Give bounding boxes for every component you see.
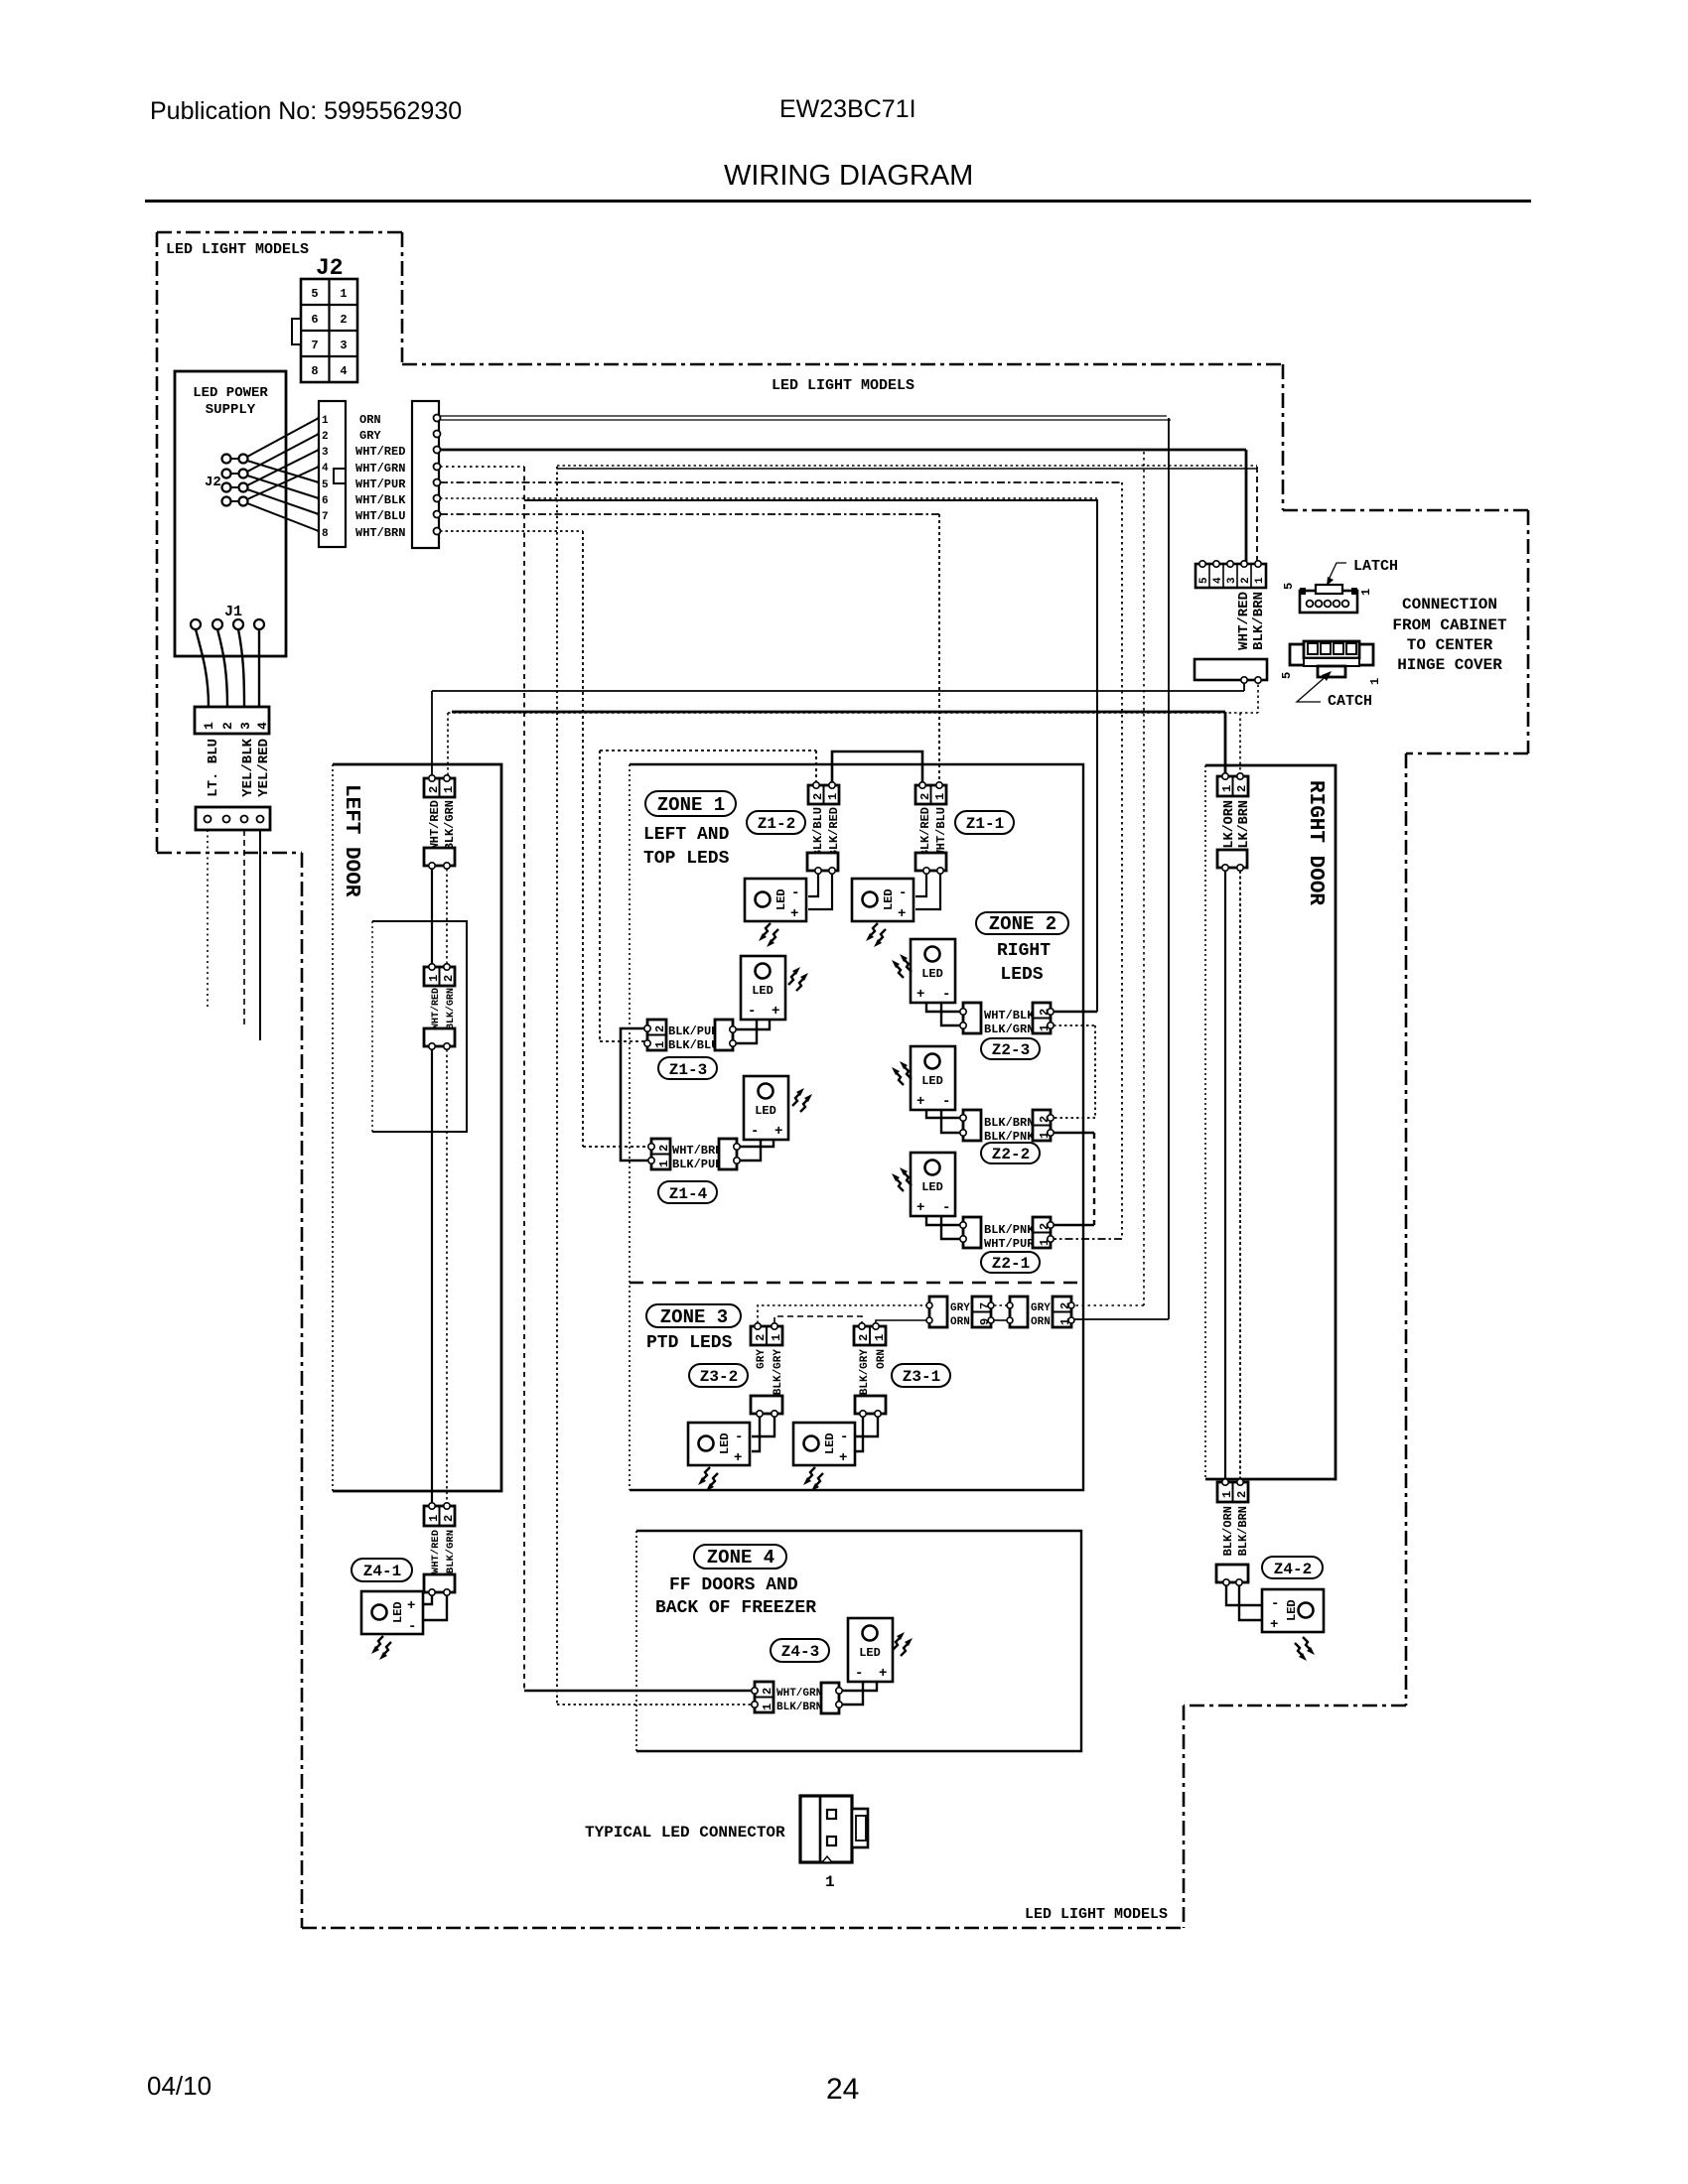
svg-text:2: 2 bbox=[220, 722, 235, 730]
svg-text:2: 2 bbox=[427, 786, 441, 793]
svg-text:5: 5 bbox=[1280, 672, 1294, 679]
svg-text:GRY: GRY bbox=[1031, 1302, 1051, 1314]
svg-text:WHT/RED: WHT/RED bbox=[355, 445, 405, 459]
svg-text:WHT/RED: WHT/RED bbox=[428, 800, 442, 850]
svg-text:1: 1 bbox=[1368, 678, 1382, 685]
svg-text:YEL/RED: YEL/RED bbox=[256, 739, 272, 797]
svg-text:5: 5 bbox=[311, 287, 318, 301]
svg-text:WHT/RED: WHT/RED bbox=[430, 988, 442, 1029]
svg-text:BLK/BLU: BLK/BLU bbox=[811, 807, 825, 857]
svg-text:BLK/PUR: BLK/PUR bbox=[672, 1158, 723, 1171]
svg-text:1: 1 bbox=[657, 1160, 671, 1167]
svg-text:1: 1 bbox=[653, 1041, 667, 1048]
svg-text:1: 1 bbox=[1220, 1491, 1234, 1498]
svg-text:WHT/PUR: WHT/PUR bbox=[355, 478, 406, 491]
svg-text:LEFT AND: LEFT AND bbox=[643, 825, 730, 845]
svg-text:LEFT DOOR: LEFT DOOR bbox=[340, 784, 362, 897]
svg-text:BLK/RED: BLK/RED bbox=[918, 807, 932, 857]
svg-text:2: 2 bbox=[322, 431, 329, 443]
svg-text:WHT/PUR: WHT/PUR bbox=[984, 1237, 1035, 1251]
svg-text:J1: J1 bbox=[224, 604, 242, 620]
svg-text:J2: J2 bbox=[205, 475, 221, 490]
svg-text:5: 5 bbox=[1282, 583, 1296, 590]
svg-text:2: 2 bbox=[1235, 1491, 1249, 1498]
svg-text:FF DOORS AND: FF DOORS AND bbox=[669, 1575, 798, 1595]
svg-text:4: 4 bbox=[255, 722, 270, 730]
svg-text:WHT/BLK: WHT/BLK bbox=[355, 493, 406, 507]
svg-text:1: 1 bbox=[442, 786, 456, 793]
svg-text:Z2-2: Z2-2 bbox=[992, 1146, 1030, 1163]
svg-text:BLK/BRN: BLK/BRN bbox=[1236, 1506, 1250, 1556]
svg-text:ORN: ORN bbox=[950, 1316, 970, 1328]
svg-text:SUPPLY: SUPPLY bbox=[206, 402, 256, 418]
svg-text:BLK/ORN: BLK/ORN bbox=[1221, 1506, 1235, 1556]
svg-text:GRY: GRY bbox=[950, 1302, 970, 1314]
svg-text:ZONE 4: ZONE 4 bbox=[707, 1547, 774, 1569]
svg-text:3: 3 bbox=[238, 722, 253, 730]
svg-text:BLK/RED: BLK/RED bbox=[827, 807, 841, 857]
svg-text:1: 1 bbox=[427, 975, 441, 982]
svg-text:WHT/RED: WHT/RED bbox=[1236, 592, 1252, 650]
svg-text:BLK/BRN: BLK/BRN bbox=[1237, 800, 1252, 857]
svg-text:2: 2 bbox=[442, 1515, 456, 1522]
svg-text:BLK/PNK: BLK/PNK bbox=[984, 1223, 1035, 1237]
svg-text:2: 2 bbox=[857, 1334, 871, 1341]
svg-text:4: 4 bbox=[322, 463, 329, 475]
svg-text:7: 7 bbox=[311, 339, 318, 352]
svg-text:Z1-4: Z1-4 bbox=[669, 1185, 708, 1203]
svg-text:4: 4 bbox=[1212, 577, 1224, 584]
svg-text:TOP LEDS: TOP LEDS bbox=[643, 849, 730, 869]
svg-text:YEL/BLK: YEL/BLK bbox=[240, 738, 256, 796]
svg-text:FROM CABINET: FROM CABINET bbox=[1392, 616, 1507, 634]
svg-text:1: 1 bbox=[1359, 589, 1373, 596]
svg-text:BLK/GRN: BLK/GRN bbox=[445, 988, 457, 1029]
svg-text:1: 1 bbox=[1254, 577, 1266, 584]
svg-text:1: 1 bbox=[933, 793, 947, 800]
svg-text:BLK/PUR: BLK/PUR bbox=[668, 1024, 719, 1038]
svg-text:1: 1 bbox=[825, 1873, 835, 1891]
svg-text:WIRING DIAGRAM: WIRING DIAGRAM bbox=[724, 160, 973, 192]
svg-text:2: 2 bbox=[918, 793, 932, 800]
svg-text:2: 2 bbox=[1235, 785, 1249, 792]
svg-text:Z4-2: Z4-2 bbox=[1274, 1561, 1312, 1578]
svg-text:8: 8 bbox=[322, 528, 329, 540]
svg-text:BACK OF FREEZER: BACK OF FREEZER bbox=[655, 1598, 816, 1618]
svg-text:Z1-3: Z1-3 bbox=[669, 1061, 707, 1079]
svg-text:2: 2 bbox=[340, 313, 347, 327]
svg-text:Publication No: 5995562930: Publication No: 5995562930 bbox=[150, 97, 462, 125]
svg-text:04/10: 04/10 bbox=[147, 2071, 211, 2101]
svg-text:WHT/BRN: WHT/BRN bbox=[672, 1144, 722, 1158]
svg-text:1: 1 bbox=[427, 1515, 441, 1522]
svg-text:WHT/BRN: WHT/BRN bbox=[355, 526, 405, 540]
svg-text:BLK/BRN: BLK/BRN bbox=[984, 1116, 1034, 1130]
svg-text:BLK/ORN: BLK/ORN bbox=[1222, 800, 1237, 857]
svg-text:2: 2 bbox=[653, 1025, 667, 1032]
svg-text:3: 3 bbox=[322, 447, 329, 459]
svg-text:1: 1 bbox=[873, 1334, 887, 1341]
svg-text:2: 2 bbox=[811, 793, 825, 800]
svg-text:1: 1 bbox=[826, 793, 840, 800]
svg-text:LED LIGHT MODELS: LED LIGHT MODELS bbox=[1025, 1906, 1168, 1923]
svg-text:HINGE COVER: HINGE COVER bbox=[1397, 656, 1502, 674]
svg-text:RIGHT: RIGHT bbox=[997, 941, 1051, 961]
svg-text:LED POWER: LED POWER bbox=[193, 385, 268, 401]
svg-text:PTD LEDS: PTD LEDS bbox=[646, 1333, 733, 1353]
svg-text:2: 2 bbox=[754, 1334, 768, 1341]
svg-text:Z1-1: Z1-1 bbox=[966, 815, 1004, 833]
svg-text:BLK/BRN: BLK/BRN bbox=[1251, 592, 1267, 650]
svg-text:5: 5 bbox=[1198, 577, 1210, 584]
svg-text:LATCH: LATCH bbox=[1353, 558, 1398, 575]
svg-text:1: 1 bbox=[340, 287, 347, 301]
svg-text:Z4-3: Z4-3 bbox=[781, 1643, 819, 1661]
svg-text:WHT/BLU: WHT/BLU bbox=[934, 807, 948, 857]
svg-text:2: 2 bbox=[442, 975, 456, 982]
svg-text:LT. BLU: LT. BLU bbox=[206, 739, 221, 797]
svg-text:24: 24 bbox=[826, 2073, 859, 2106]
svg-text:LED LIGHT MODELS: LED LIGHT MODELS bbox=[772, 377, 914, 394]
svg-text:BLK/GRN: BLK/GRN bbox=[984, 1023, 1034, 1036]
svg-text:WHT/GRN: WHT/GRN bbox=[355, 462, 405, 476]
svg-text:7: 7 bbox=[322, 511, 329, 523]
svg-text:WHT/RED: WHT/RED bbox=[430, 1530, 442, 1573]
svg-text:WHT/BLU: WHT/BLU bbox=[355, 509, 405, 523]
svg-text:5: 5 bbox=[322, 479, 329, 491]
svg-text:GRY: GRY bbox=[359, 429, 381, 443]
svg-text:8: 8 bbox=[311, 364, 318, 378]
svg-text:Z1-2: Z1-2 bbox=[758, 815, 795, 833]
svg-text:2: 2 bbox=[657, 1145, 671, 1152]
svg-text:RIGHT DOOR: RIGHT DOOR bbox=[1304, 780, 1327, 905]
svg-text:BLK/GRN: BLK/GRN bbox=[443, 800, 457, 850]
svg-text:BLK/GRY: BLK/GRY bbox=[859, 1349, 871, 1396]
svg-text:ZONE 1: ZONE 1 bbox=[657, 794, 725, 816]
svg-text:BLK/PNK: BLK/PNK bbox=[984, 1130, 1035, 1144]
svg-text:4: 4 bbox=[340, 364, 347, 378]
svg-text:CATCH: CATCH bbox=[1328, 693, 1372, 710]
svg-text:2: 2 bbox=[1240, 577, 1252, 584]
svg-text:ORN: ORN bbox=[1031, 1316, 1051, 1328]
svg-text:BLK/GRN: BLK/GRN bbox=[445, 1530, 457, 1573]
svg-text:LED LIGHT MODELS: LED LIGHT MODELS bbox=[166, 241, 309, 258]
svg-text:Z3-2: Z3-2 bbox=[700, 1368, 738, 1386]
svg-text:BLK/BRN: BLK/BRN bbox=[776, 1702, 822, 1713]
svg-text:Z3-1: Z3-1 bbox=[903, 1368, 940, 1386]
svg-text:ORN: ORN bbox=[876, 1349, 888, 1369]
svg-text:BLK/BLU: BLK/BLU bbox=[668, 1038, 718, 1052]
svg-text:CONNECTION: CONNECTION bbox=[1402, 596, 1497, 614]
svg-text:6: 6 bbox=[311, 313, 318, 327]
svg-text:6: 6 bbox=[322, 495, 329, 507]
svg-text:ZONE 3: ZONE 3 bbox=[660, 1306, 728, 1328]
svg-text:2: 2 bbox=[761, 1688, 774, 1695]
svg-text:1: 1 bbox=[322, 415, 329, 427]
svg-text:GRY: GRY bbox=[756, 1349, 768, 1369]
svg-text:ORN: ORN bbox=[359, 413, 381, 427]
svg-text:Z2-3: Z2-3 bbox=[992, 1041, 1030, 1059]
svg-text:1: 1 bbox=[761, 1704, 774, 1710]
svg-text:3: 3 bbox=[1226, 577, 1238, 584]
svg-text:TYPICAL LED CONNECTOR: TYPICAL LED CONNECTOR bbox=[585, 1824, 785, 1842]
svg-text:WHT/BLK: WHT/BLK bbox=[984, 1009, 1035, 1023]
svg-text:Z4-1: Z4-1 bbox=[363, 1563, 401, 1580]
svg-text:BLK/GRY: BLK/GRY bbox=[773, 1349, 784, 1396]
svg-text:TO CENTER: TO CENTER bbox=[1407, 636, 1493, 654]
svg-text:1: 1 bbox=[202, 722, 216, 730]
svg-text:Z2-1: Z2-1 bbox=[992, 1255, 1030, 1273]
svg-text:EW23BC71I: EW23BC71I bbox=[779, 95, 916, 123]
svg-text:1: 1 bbox=[1220, 785, 1234, 792]
svg-text:LEDS: LEDS bbox=[1000, 965, 1043, 985]
svg-text:ZONE 2: ZONE 2 bbox=[989, 913, 1056, 935]
svg-text:J2: J2 bbox=[316, 255, 344, 281]
svg-text:WHT/GRN: WHT/GRN bbox=[776, 1688, 822, 1700]
svg-text:3: 3 bbox=[340, 339, 347, 352]
svg-text:1: 1 bbox=[770, 1334, 783, 1341]
